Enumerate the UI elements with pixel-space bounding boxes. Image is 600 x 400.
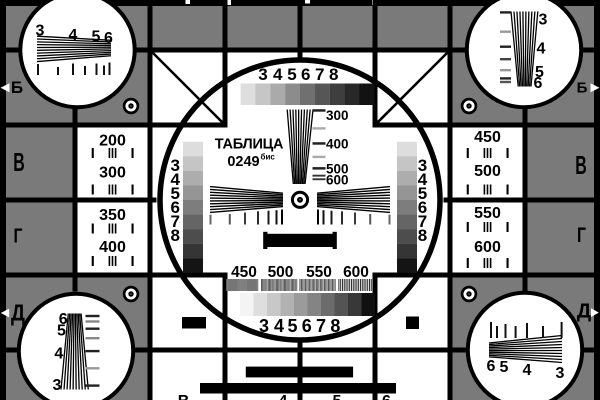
svg-text:300: 300 (326, 108, 349, 123)
svg-text:450: 450 (231, 264, 257, 281)
svg-text:3: 3 (539, 12, 548, 29)
svg-text:600: 600 (343, 264, 369, 281)
svg-text:5: 5 (287, 65, 296, 84)
svg-text:0249: 0249 (227, 154, 259, 170)
svg-text:300: 300 (99, 164, 126, 181)
svg-text:Г: Г (14, 226, 23, 248)
svg-text:5: 5 (333, 393, 342, 400)
svg-text:600: 600 (326, 172, 349, 187)
svg-text:450: 450 (474, 129, 501, 146)
svg-text:Б: Б (577, 80, 588, 97)
svg-text:7: 7 (316, 316, 326, 336)
svg-text:6: 6 (302, 316, 312, 336)
svg-text:7: 7 (315, 65, 324, 84)
svg-text:ТАБЛИЦА: ТАБЛИЦА (215, 137, 284, 153)
svg-text:4: 4 (69, 27, 78, 44)
svg-text:6: 6 (487, 358, 496, 375)
svg-text:5: 5 (287, 316, 297, 336)
svg-text:В: В (575, 150, 587, 180)
svg-text:8: 8 (418, 226, 427, 245)
svg-text:Д: Д (11, 300, 25, 326)
svg-text:550: 550 (306, 264, 332, 281)
svg-text:6: 6 (382, 393, 391, 400)
svg-text:400: 400 (326, 137, 349, 152)
svg-text:5: 5 (92, 29, 101, 46)
svg-text:5: 5 (500, 359, 509, 376)
svg-text:8: 8 (330, 316, 340, 336)
svg-text:4: 4 (523, 362, 532, 379)
svg-text:8: 8 (171, 226, 180, 245)
svg-text:350: 350 (99, 207, 126, 224)
svg-text:3: 3 (556, 365, 565, 382)
svg-text:500: 500 (268, 264, 294, 281)
svg-text:4: 4 (274, 316, 284, 336)
svg-text:3: 3 (53, 377, 62, 394)
svg-text:Г: Г (577, 224, 586, 247)
svg-text:Б: Б (11, 78, 23, 97)
svg-text:600: 600 (474, 239, 501, 256)
svg-text:6: 6 (534, 75, 543, 92)
svg-text:В: В (13, 147, 25, 177)
svg-text:400: 400 (99, 239, 126, 256)
svg-text:бис: бис (261, 152, 276, 161)
svg-text:3: 3 (258, 65, 267, 84)
svg-text:В: В (178, 393, 190, 400)
svg-text:4: 4 (273, 65, 283, 84)
svg-text:550: 550 (474, 205, 501, 222)
svg-text:4: 4 (279, 393, 288, 400)
svg-text:200: 200 (99, 133, 126, 150)
svg-text:4: 4 (54, 346, 63, 363)
svg-text:4: 4 (537, 41, 546, 58)
svg-text:Д: Д (577, 301, 591, 323)
svg-text:6: 6 (104, 30, 113, 47)
svg-text:8: 8 (329, 65, 338, 84)
svg-text:5: 5 (57, 323, 66, 340)
svg-text:500: 500 (474, 163, 501, 180)
svg-text:6: 6 (301, 65, 310, 84)
svg-text:3: 3 (259, 316, 269, 336)
svg-text:3: 3 (36, 23, 45, 40)
